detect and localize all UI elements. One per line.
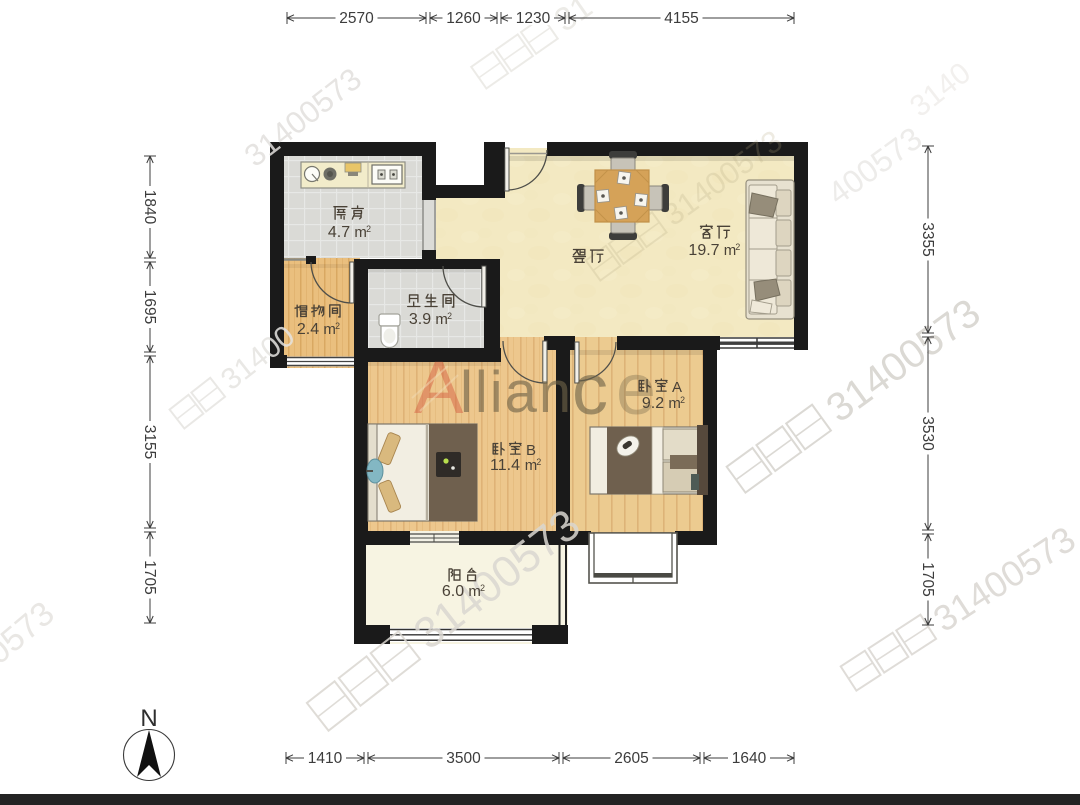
svg-text:2605: 2605: [614, 750, 648, 767]
svg-text:2.4: 2.4: [297, 321, 319, 338]
svg-text:11.4: 11.4: [490, 457, 520, 474]
svg-text:19.7: 19.7: [688, 242, 719, 259]
svg-text:2: 2: [447, 311, 452, 321]
svg-text:m: m: [468, 583, 481, 600]
svg-text:2570: 2570: [339, 10, 374, 27]
svg-text:4.7: 4.7: [328, 224, 350, 241]
svg-text:1640: 1640: [732, 750, 767, 767]
svg-text:c: c: [572, 350, 608, 430]
svg-text:1705: 1705: [919, 562, 936, 596]
svg-text:4155: 4155: [664, 10, 698, 27]
svg-text:m: m: [724, 242, 737, 259]
svg-text:3355: 3355: [919, 222, 936, 256]
svg-text:m: m: [435, 311, 448, 328]
svg-text:1695: 1695: [141, 290, 158, 324]
svg-text:9.2: 9.2: [642, 395, 664, 412]
svg-text:m: m: [668, 395, 681, 412]
svg-text:1260: 1260: [446, 10, 481, 27]
svg-text:e: e: [616, 350, 656, 430]
svg-text:2: 2: [536, 457, 541, 467]
svg-text:3.9: 3.9: [409, 311, 431, 328]
svg-text:1840: 1840: [141, 190, 158, 225]
svg-text:1230: 1230: [516, 10, 551, 27]
svg-text:m: m: [525, 457, 538, 474]
svg-text:2: 2: [366, 224, 371, 234]
svg-text:6.0: 6.0: [442, 583, 464, 600]
svg-text:N: N: [140, 705, 157, 732]
svg-text:m: m: [323, 321, 336, 338]
svg-text:3500: 3500: [446, 750, 481, 767]
svg-text:3155: 3155: [141, 425, 158, 459]
svg-text:A: A: [414, 346, 464, 429]
svg-text:A: A: [672, 379, 682, 396]
svg-text:llian: llian: [460, 360, 573, 425]
svg-text:2: 2: [335, 321, 340, 331]
svg-text:2: 2: [735, 242, 740, 252]
svg-text:2: 2: [480, 583, 485, 593]
svg-text:1705: 1705: [141, 560, 158, 594]
svg-text:3530: 3530: [919, 416, 936, 451]
svg-text:m: m: [354, 224, 367, 241]
svg-text:1410: 1410: [308, 750, 343, 767]
svg-text:2: 2: [680, 395, 685, 405]
